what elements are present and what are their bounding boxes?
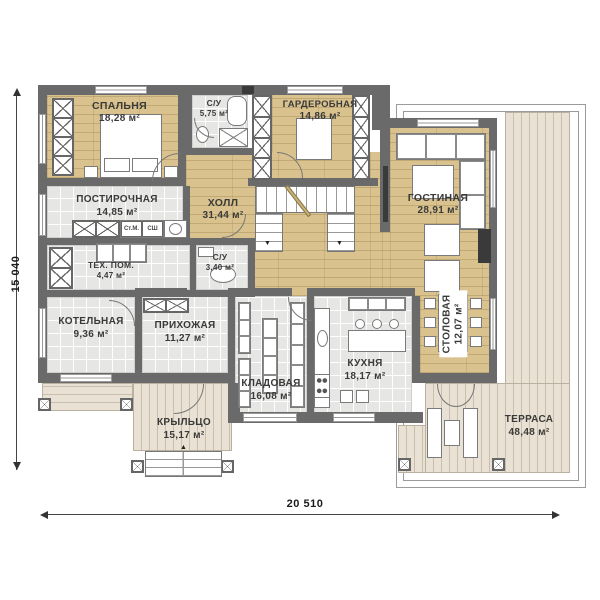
- dimension-height-label: 15 040: [10, 244, 22, 304]
- x-hatch-cell: [353, 158, 369, 179]
- kitchen-counter-top: [348, 297, 406, 311]
- shelf-cell: [456, 134, 485, 159]
- wall: [47, 238, 255, 245]
- wall: [312, 288, 415, 296]
- window: [417, 119, 479, 127]
- x-hatch-cell: [493, 459, 504, 470]
- dimension-line-horizontal: [42, 514, 558, 515]
- porch-steps: [145, 451, 222, 477]
- dryer: СШ: [142, 221, 163, 237]
- wall-pillar: [242, 86, 254, 94]
- shelf-cell: [368, 298, 387, 310]
- window: [39, 194, 46, 236]
- shelf-cell: [426, 134, 455, 159]
- x-hatch-cell: [253, 138, 271, 159]
- porch-post: [38, 398, 51, 411]
- room-label-entry: ПРИХОЖАЯ11,27 м²: [142, 320, 228, 345]
- shelf-cell: [386, 298, 405, 310]
- kitchen-sink: [317, 330, 328, 347]
- room-hall-floor: [382, 232, 390, 296]
- wall: [185, 148, 255, 155]
- kitchen-appliance: [340, 390, 353, 403]
- shelf-cell: [397, 134, 426, 159]
- armchair: [424, 224, 460, 256]
- room-label-living: ГОСТИНАЯ28,91 м²: [388, 192, 488, 218]
- room-label-bathroom-small: С/У3,40 м²: [198, 252, 242, 273]
- armchair: [424, 260, 460, 292]
- wardrobe-shelf: [296, 118, 332, 160]
- x-hatch-cell: [96, 221, 119, 237]
- stairs-arrow: ▼: [264, 240, 271, 247]
- shelf-cell: [291, 345, 304, 366]
- tv-unit: [478, 229, 491, 263]
- porch-post: [221, 460, 234, 473]
- wall: [412, 296, 420, 383]
- laundry-counter-units: [72, 220, 120, 238]
- wall: [135, 296, 142, 383]
- shelf-cell: [349, 298, 368, 310]
- kitchen-island: [348, 330, 406, 352]
- shower: [219, 128, 248, 147]
- shelf-cell: [239, 336, 250, 353]
- window: [243, 413, 297, 422]
- lounger: [463, 408, 478, 458]
- wall: [412, 373, 497, 383]
- lounger: [427, 408, 442, 458]
- room-label-tech: ТЕХ. ПОМ.4,47 м²: [76, 260, 146, 281]
- entry-closet: [143, 298, 189, 313]
- wall: [135, 288, 187, 296]
- window: [39, 308, 46, 358]
- stairs-arrow: ▼: [336, 240, 343, 247]
- floor-plan: ▼ ▼ Ст.М. СШ: [0, 0, 600, 600]
- room-label-dining: СТОЛОВАЯ12,07 м²: [426, 295, 480, 353]
- porch-post: [131, 460, 144, 473]
- laundry-sink-bowl: [169, 223, 182, 235]
- kitchen-appliance: [356, 390, 369, 403]
- x-hatch-cell: [50, 248, 72, 268]
- laundry-appliances: Ст.М. СШ: [120, 220, 164, 238]
- room-label-laundry: ПОСТИРОЧНАЯ14,85 м²: [52, 194, 182, 219]
- shelf-cell: [239, 359, 250, 375]
- nightstand: [84, 166, 98, 178]
- porch-post: [120, 398, 133, 411]
- x-hatch-cell: [353, 138, 369, 159]
- window: [287, 86, 343, 94]
- window: [39, 114, 46, 164]
- shelf-cell: [263, 338, 277, 357]
- shelf-cell: [291, 324, 304, 345]
- shelf-cell: [460, 161, 485, 195]
- tech-cabinet: [49, 247, 73, 289]
- x-hatch-cell: [53, 137, 73, 156]
- room-label-bathroom-top: С/У5,75 м²: [192, 98, 236, 119]
- terrace-post: [492, 458, 505, 471]
- sofa: [396, 133, 486, 160]
- shelf-cell: [239, 320, 250, 337]
- room-label-terrace: ТЕРРАСА48,48 м²: [488, 414, 570, 439]
- wall: [190, 245, 196, 290]
- dimension-arrow-right: [552, 511, 560, 519]
- pantry-shelf: [238, 302, 251, 354]
- terrace-post: [398, 458, 411, 471]
- x-hatch-cell: [53, 156, 73, 175]
- bar-stool: [355, 319, 365, 329]
- terrace-table: [444, 420, 460, 446]
- dimension-arrow-down: [13, 462, 21, 470]
- shelf-cell: [263, 356, 277, 375]
- bar-stool: [372, 319, 382, 329]
- pillow: [104, 158, 130, 172]
- x-hatch-cell: [39, 399, 50, 410]
- window: [490, 298, 496, 350]
- window: [333, 413, 375, 422]
- dimension-arrow-left: [40, 511, 48, 519]
- window: [490, 150, 496, 208]
- x-hatch-cell: [144, 299, 166, 312]
- bar-stool: [389, 319, 399, 329]
- x-hatch-cell: [121, 399, 132, 410]
- room-label-wardrobe: ГАРДЕРОБНАЯ14,86 м²: [260, 99, 380, 123]
- x-hatch-cell: [50, 268, 72, 288]
- shelf-cell: [263, 319, 277, 338]
- room-label-kitchen: КУХНЯ18,17 м²: [322, 358, 408, 383]
- x-hatch-cell: [73, 221, 96, 237]
- room-label-porch: КРЫЛЬЦО15,17 м²: [148, 417, 220, 442]
- shelf-cell: [239, 303, 250, 320]
- dimension-arrow-up: [13, 88, 21, 96]
- window: [95, 86, 147, 94]
- dimension-width-label: 20 510: [270, 498, 340, 510]
- room-label-pantry: КЛАДОВАЯ16,08 м²: [234, 378, 308, 403]
- room-label-hall: ХОЛЛ31,44 м²: [190, 197, 256, 223]
- wall: [135, 373, 235, 383]
- wall: [228, 288, 292, 296]
- room-label-boiler: КОТЕЛЬНАЯ9,36 м²: [47, 316, 135, 341]
- x-hatch-cell: [132, 461, 143, 472]
- porch-arrow: ▲: [180, 444, 187, 451]
- room-label-bedroom: СПАЛЬНЯ18,28 м²: [62, 100, 177, 126]
- x-hatch-cell: [166, 299, 188, 312]
- window: [60, 374, 112, 382]
- washing-machine: Ст.М.: [121, 221, 142, 237]
- x-hatch-cell: [399, 459, 410, 470]
- x-hatch-cell: [222, 461, 233, 472]
- x-hatch-cell: [253, 158, 271, 179]
